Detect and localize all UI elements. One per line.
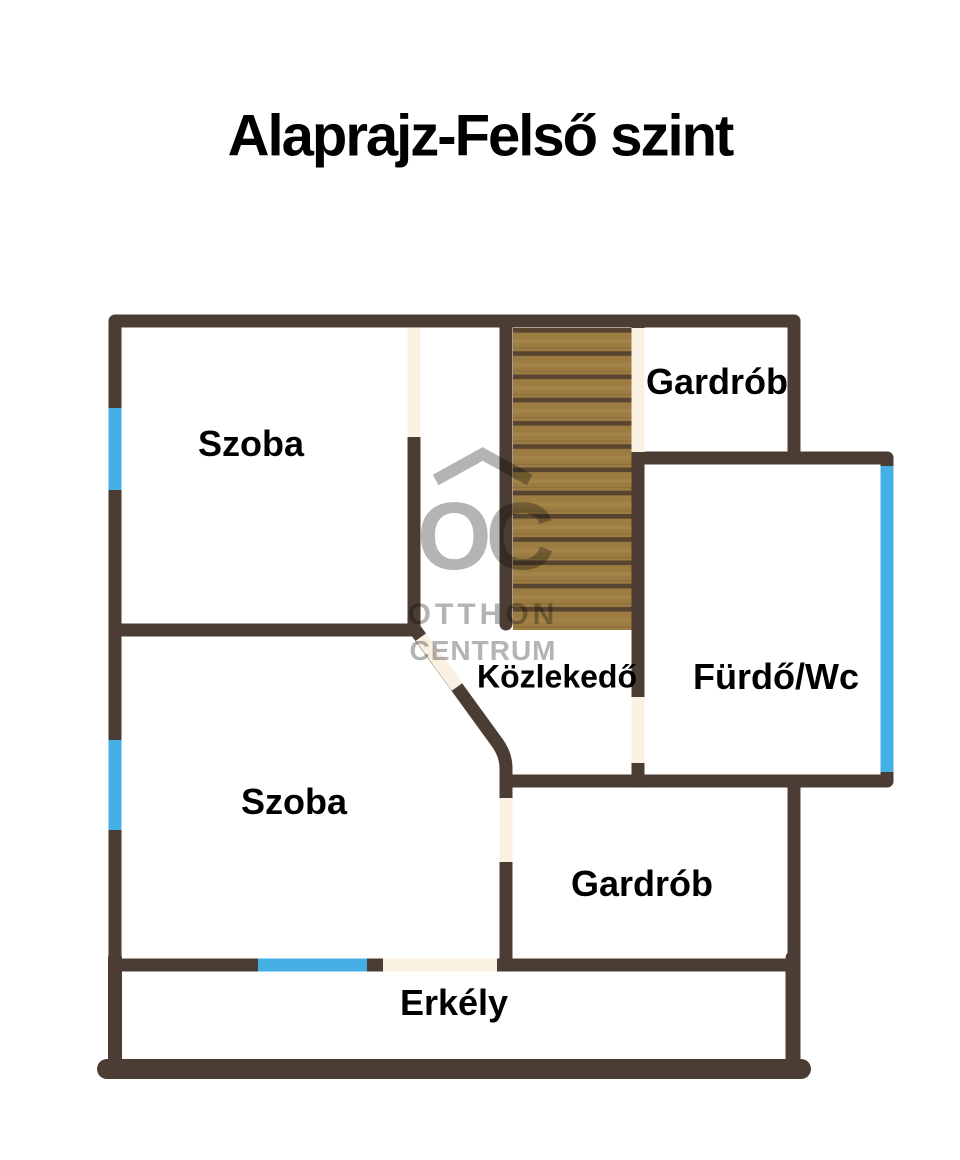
- floorplan-page: Alaprajz-Felső szint: [0, 0, 960, 1160]
- staircase: [513, 328, 632, 630]
- room-label-gardrob-bottom: Gardrób: [571, 863, 713, 905]
- room-label-gardrob-top: Gardrób: [646, 361, 788, 403]
- room-label-erkely: Erkély: [400, 982, 508, 1024]
- door-szoba-bottom-diagonal: [421, 637, 457, 687]
- room-label-szoba-bottom: Szoba: [241, 781, 347, 823]
- room-label-kozlekedo: Közlekedő: [477, 659, 637, 696]
- room-label-szoba-top: Szoba: [198, 423, 304, 465]
- room-label-furdo-wc: Fürdő/Wc: [693, 656, 859, 698]
